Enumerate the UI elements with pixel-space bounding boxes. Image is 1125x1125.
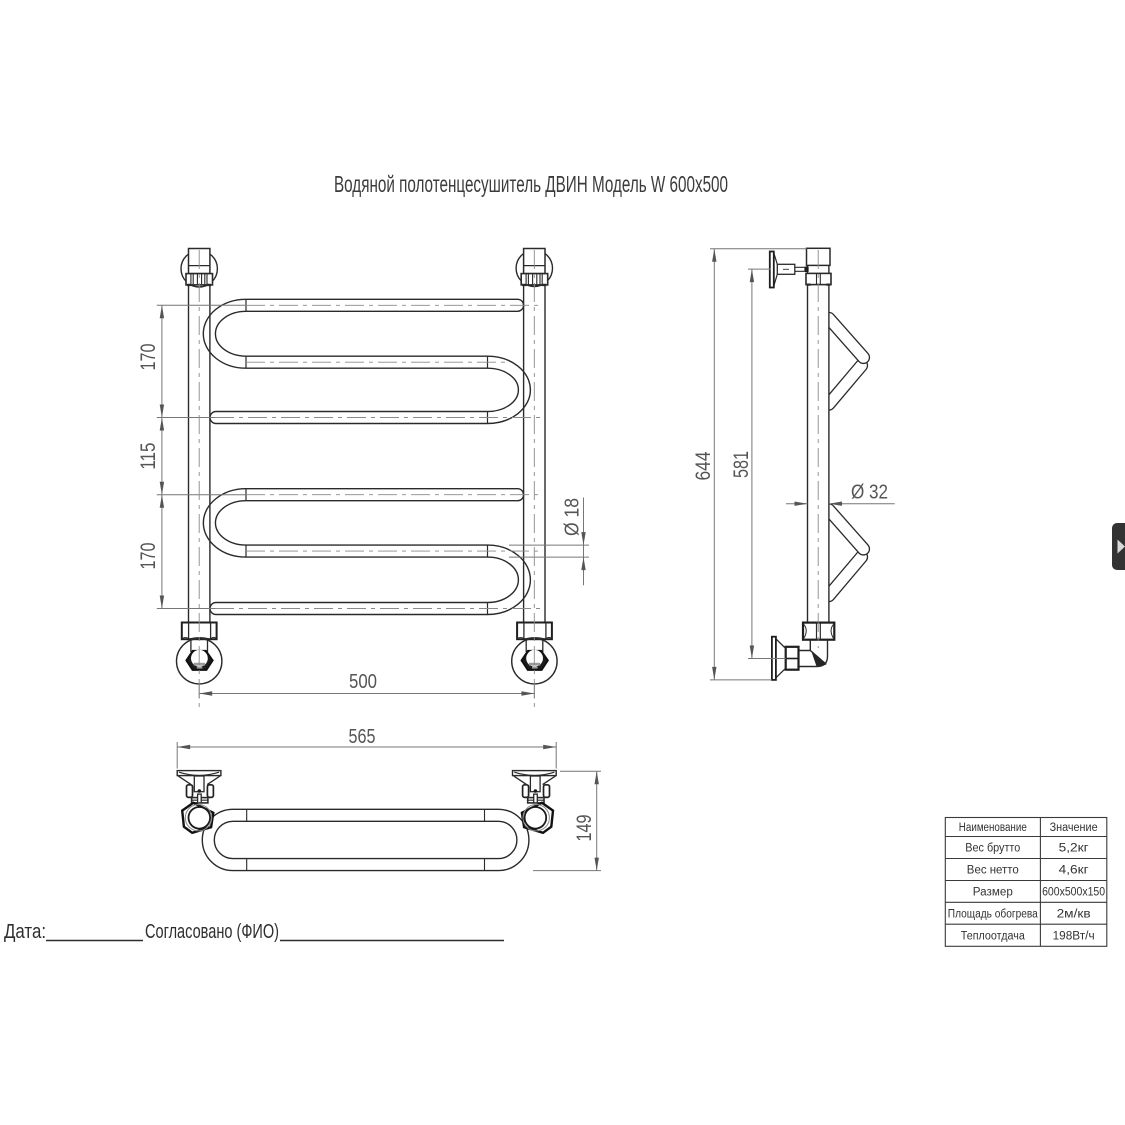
- svg-text:198Вт/ч: 198Вт/ч: [1053, 930, 1095, 942]
- svg-text:Наименование: Наименование: [959, 822, 1027, 834]
- svg-text:600x500x150: 600x500x150: [1042, 886, 1105, 898]
- svg-text:4,6кг: 4,6кг: [1059, 865, 1089, 877]
- svg-text:Теплоотдача: Теплоотдача: [961, 930, 1026, 942]
- svg-text:Ø 18: Ø 18: [562, 498, 584, 536]
- svg-text:Площадь обогрева: Площадь обогрева: [948, 908, 1039, 920]
- svg-text:565: 565: [349, 726, 376, 748]
- svg-text:Согласовано (ФИО): Согласовано (ФИО): [145, 921, 279, 943]
- svg-text:Значение: Значение: [1050, 822, 1098, 834]
- svg-text:500: 500: [349, 671, 377, 693]
- svg-text:5,2кг: 5,2кг: [1059, 843, 1089, 855]
- svg-text:Дата:: Дата:: [4, 921, 46, 943]
- svg-text:170: 170: [137, 543, 160, 570]
- svg-text:149: 149: [573, 815, 596, 842]
- svg-text:Вес нетто: Вес нетто: [967, 865, 1019, 877]
- svg-text:170: 170: [137, 344, 160, 371]
- svg-text:Вес брутто: Вес брутто: [965, 843, 1020, 855]
- svg-text:581: 581: [730, 451, 753, 478]
- svg-text:115: 115: [137, 443, 160, 470]
- svg-text:644: 644: [692, 451, 715, 480]
- svg-text:Водяной полотенцесушитель ДВИН: Водяной полотенцесушитель ДВИН Модель W …: [334, 171, 728, 197]
- svg-text:Ø 32: Ø 32: [851, 482, 888, 504]
- svg-text:2м/кв: 2м/кв: [1057, 908, 1091, 920]
- svg-text:Размер: Размер: [973, 886, 1013, 898]
